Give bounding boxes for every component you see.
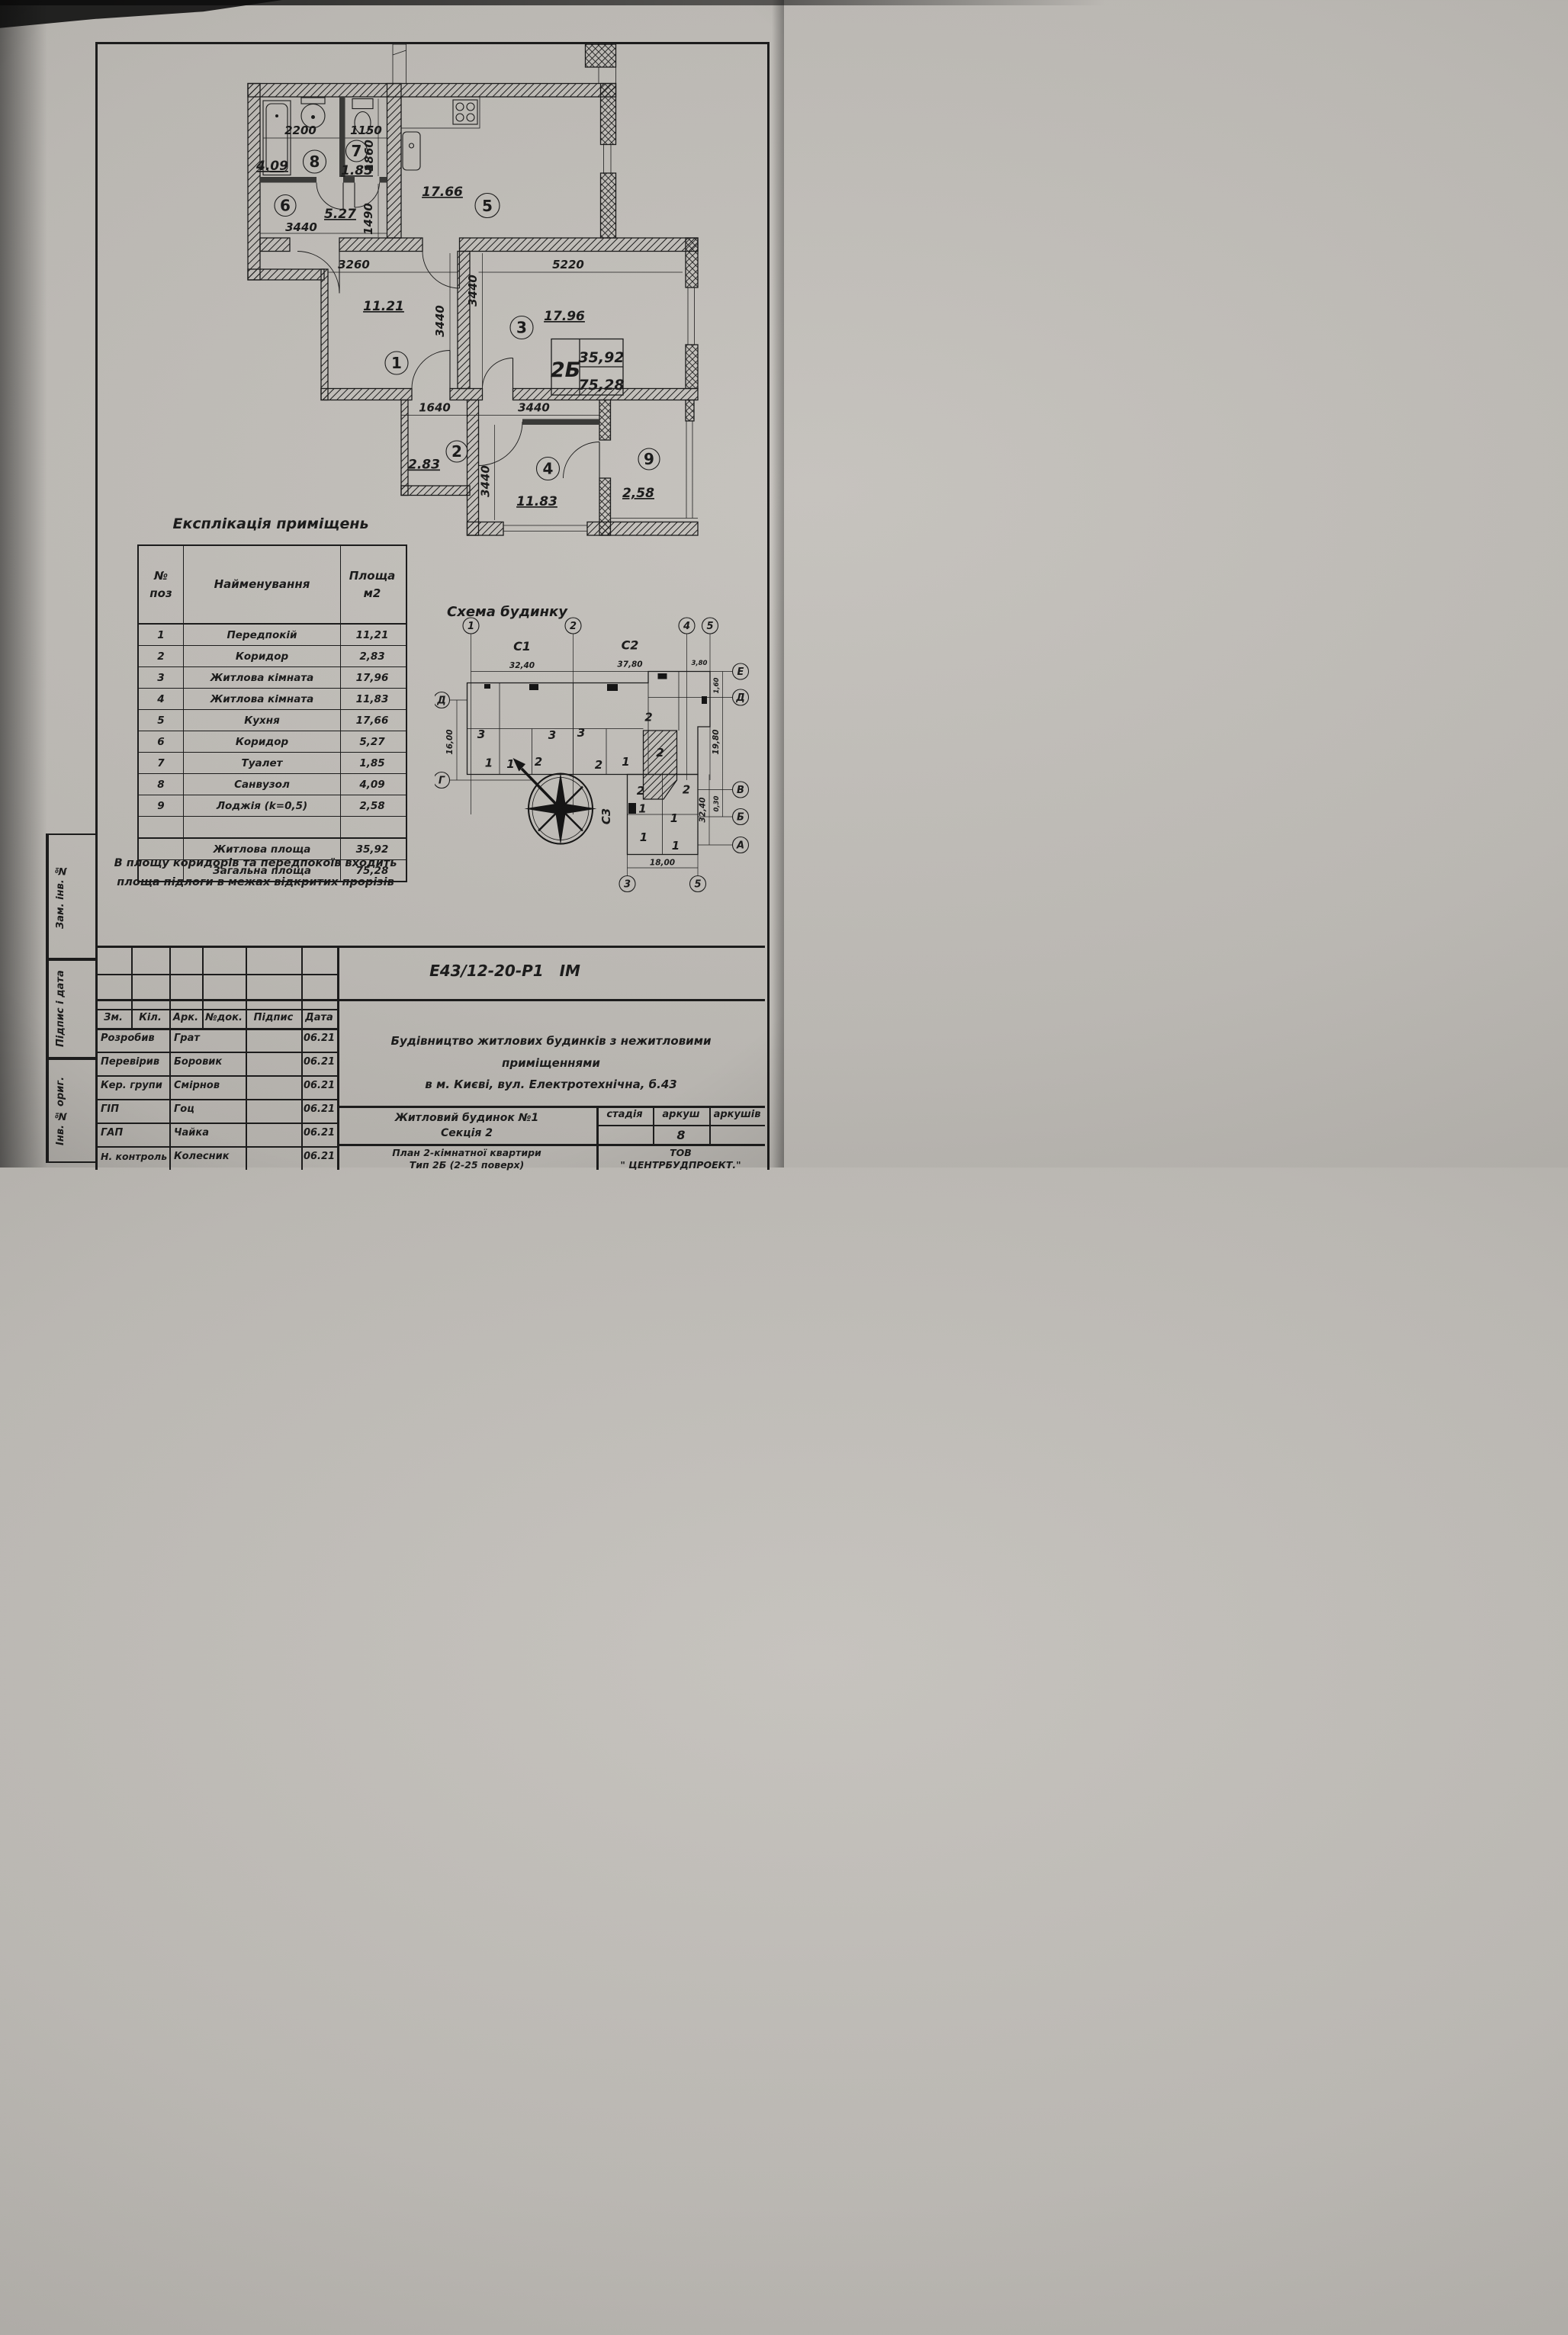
dim-bath-width: 2200	[284, 124, 316, 137]
svg-text:5: 5	[706, 621, 713, 632]
scheme-axis-bubbles: 1 2 4 5 Е Д В Б А Д Г 3 5	[435, 618, 749, 892]
svg-text:Д: Д	[735, 692, 745, 704]
stamp-type: 2Б	[551, 358, 580, 382]
svg-text:0,30: 0,30	[713, 795, 721, 811]
svg-text:2: 2	[683, 783, 690, 797]
table-row: 2Коридор2,83	[139, 645, 406, 666]
room4-area: 11.83	[516, 494, 557, 509]
sheets-col: аркушів	[709, 1109, 765, 1120]
col-ark: Арк.	[169, 1012, 202, 1023]
room9-area: 2,58	[622, 486, 654, 501]
svg-text:2: 2	[637, 784, 644, 798]
explication-header: №поз Найменування Площам2	[139, 546, 406, 623]
room1-number: 1	[391, 354, 402, 372]
building-scheme: Схема будинку 33	[435, 601, 774, 894]
section-c2: С2	[622, 638, 639, 653]
svg-text:1: 1	[468, 621, 474, 632]
note-line2: площа підлоги в межах відкритих прорізів	[103, 873, 408, 892]
dim-room3-depth: 3440	[466, 275, 480, 307]
sig-date: 06.21	[301, 1033, 337, 1044]
header-area2: м2	[364, 585, 381, 602]
header-num1: №	[154, 567, 168, 585]
dim-room1-width: 3260	[338, 258, 370, 271]
dim-room4-width: 3440	[518, 401, 550, 415]
dim-hall2-width: 1640	[419, 401, 451, 415]
sig-date: 06.21	[301, 1151, 337, 1162]
sig-role: Кер. групи	[101, 1080, 168, 1091]
header-num2: поз	[149, 585, 172, 602]
svg-text:Е: Е	[737, 666, 744, 678]
doc-code: ІМ	[560, 962, 580, 980]
svg-text:18,00: 18,00	[650, 859, 675, 868]
sheet-col: аркуш	[653, 1109, 709, 1120]
svg-text:2: 2	[535, 755, 542, 769]
svg-text:3: 3	[577, 726, 585, 740]
svg-text:Б: Б	[737, 812, 744, 824]
room2-area: 2.83	[408, 458, 440, 473]
col-zm: Зм.	[95, 1012, 131, 1023]
svg-text:2: 2	[644, 711, 652, 724]
section-c3: С3	[599, 808, 613, 824]
svg-text:5: 5	[694, 879, 701, 891]
scanned-drawing-sheet: { "plan": { "apartment_stamp": {"type": …	[0, 0, 784, 1167]
wall-stub-top-left	[393, 44, 406, 84]
dim-room1-depth: 3440	[433, 305, 447, 337]
svg-text:В: В	[737, 785, 744, 796]
svg-text:1: 1	[638, 802, 646, 816]
room7-area: 1.85	[341, 163, 373, 178]
room8-area: 4.09	[255, 159, 288, 174]
sheet-title: План 2-кімнатної квартири Тип 2Б (2-25 п…	[337, 1147, 596, 1172]
room3-number: 3	[516, 319, 527, 337]
col-pidpys: Підпис	[246, 1012, 301, 1023]
header-name: Найменування	[214, 576, 310, 593]
room5-number: 5	[482, 197, 493, 215]
sig-date: 06.21	[301, 1056, 337, 1068]
apartment-stamp: 2Б 35,92 75,28	[551, 339, 625, 396]
svg-text:16,00: 16,00	[445, 729, 455, 754]
side-box-zam-inv: Зам. інв. №	[46, 833, 97, 959]
room3-area: 17.96	[544, 309, 585, 324]
explication-title: Експлікація приміщень	[137, 515, 404, 532]
col-ndok: №док.	[202, 1012, 246, 1023]
room5-area: 17.66	[422, 185, 463, 200]
svg-text:3,80: 3,80	[692, 660, 708, 667]
col-kil: Кіл.	[131, 1012, 169, 1023]
room2-number: 2	[451, 442, 462, 461]
room6-number: 6	[280, 197, 291, 215]
sig-role: Н. контроль	[101, 1151, 168, 1162]
side-label: Підпис і дата	[47, 961, 72, 1057]
svg-text:2: 2	[656, 746, 664, 760]
header-area1: Площа	[349, 567, 396, 585]
section-c1: С1	[513, 639, 531, 654]
svg-text:1,60: 1,60	[713, 677, 721, 693]
stamp-living-area: 35,92	[578, 349, 624, 366]
sig-name: Смірнов	[174, 1080, 244, 1091]
doc-number: Е43/12-20-Р1 ІМ	[337, 962, 673, 980]
scan-left-shadow	[0, 0, 47, 1167]
svg-text:1: 1	[622, 755, 629, 769]
side-box-inv-oryg: Інв. № ориг.	[46, 1058, 97, 1163]
table-row: 8Санвузол4,09	[139, 773, 406, 795]
scheme-axes-lines	[449, 634, 732, 876]
svg-text:3: 3	[477, 727, 485, 741]
dim-wc-width: 1150	[350, 124, 382, 137]
sig-role: Перевірив	[101, 1056, 168, 1068]
svg-text:3: 3	[624, 879, 631, 891]
svg-text:1: 1	[670, 811, 678, 825]
table-row: 4Житлова кімната11,83	[139, 688, 406, 709]
svg-text:1: 1	[506, 757, 514, 771]
kitchen-counter	[401, 97, 480, 170]
sig-role: Розробив	[101, 1033, 168, 1044]
col-data: Дата	[301, 1012, 337, 1023]
dim-room3-width: 5220	[552, 258, 584, 271]
company-name: ТОВ " ЦЕНТРБУДПРОЕКТ."	[596, 1147, 765, 1172]
room6-area: 5.27	[324, 207, 356, 222]
room1-area: 11.21	[363, 299, 404, 314]
svg-text:4: 4	[683, 621, 690, 632]
svg-text:19,80: 19,80	[712, 729, 721, 754]
sig-name: Колесник	[174, 1151, 244, 1162]
svg-text:1: 1	[640, 830, 647, 844]
side-label: Зам. інв. №	[47, 835, 72, 958]
sig-date: 06.21	[301, 1080, 337, 1091]
walls-hatched	[248, 84, 698, 536]
table-row: 1Передпокій11,21	[139, 623, 406, 645]
dim-room4-depth: 3440	[479, 465, 493, 497]
title-block: Е43/12-20-Р1 ІМ Будівництво житлових буд…	[95, 946, 765, 1170]
floor-plan: 2200 1150 1860 1490 3440 3260 3440 5220 …	[244, 43, 705, 543]
svg-text:Д: Д	[436, 695, 446, 707]
table-row: 3Житлова кімната17,96	[139, 666, 406, 688]
scheme-title: Схема будинку	[447, 604, 568, 620]
dim-hall6-width: 3440	[285, 220, 317, 234]
room4-number: 4	[543, 460, 554, 478]
stage-col: стадія	[596, 1109, 653, 1120]
sig-role: ГІП	[101, 1103, 168, 1115]
explication-table: №поз Найменування Площам2 1Передпокій11,…	[137, 544, 407, 882]
sheet-number: 8	[653, 1128, 709, 1142]
room9-number: 9	[644, 450, 654, 468]
side-label: Інв. № ориг.	[47, 1060, 72, 1161]
stamp-total-area: 75,28	[578, 377, 624, 393]
object-name: Житловий будинок №1 Секція 2	[337, 1110, 596, 1142]
compass-icon	[513, 758, 597, 845]
sig-date: 06.21	[301, 1103, 337, 1115]
sig-name: Чайка	[174, 1127, 244, 1139]
svg-text:3: 3	[548, 728, 556, 742]
doors	[297, 183, 599, 479]
wall-stub-top-right	[586, 44, 616, 84]
sig-name: Боровик	[174, 1056, 244, 1068]
table-row: 5Кухня17,66	[139, 709, 406, 731]
svg-text:32,40: 32,40	[699, 797, 708, 822]
dim-hall6-depth: 1490	[361, 203, 375, 235]
table-row: 9Лоджія (k=0,5)2,58	[139, 795, 406, 816]
project-description: Будівництво житлових будинків з нежитлов…	[347, 1030, 755, 1096]
svg-text:А: А	[736, 840, 744, 852]
svg-text:1: 1	[485, 756, 493, 770]
side-box-pidpys-data: Підпис і дата	[46, 959, 97, 1058]
sig-date: 06.21	[301, 1127, 337, 1139]
scan-right-shadow	[772, 0, 784, 1167]
sig-name: Грат	[174, 1033, 244, 1044]
sig-name: Гоц	[174, 1103, 244, 1115]
svg-text:1: 1	[672, 839, 680, 853]
svg-text:32,40: 32,40	[509, 661, 535, 670]
partitions	[260, 97, 599, 425]
svg-text:Г: Г	[439, 776, 445, 787]
stove	[453, 100, 477, 124]
room8-number: 8	[310, 153, 320, 171]
note-line1: В площу коридорів та передпокоїв входить	[103, 854, 408, 873]
table-row: 6Коридор5,27	[139, 731, 406, 752]
floor-area-note: В площу коридорів та передпокоїв входить…	[103, 854, 408, 893]
svg-text:2: 2	[570, 621, 577, 632]
table-row-empty	[139, 816, 406, 837]
sig-role: ГАП	[101, 1127, 168, 1139]
svg-text:37,80: 37,80	[617, 660, 642, 670]
room7-number: 7	[352, 142, 362, 160]
table-row: 7Туалет1,85	[139, 752, 406, 773]
svg-text:2: 2	[595, 758, 602, 772]
